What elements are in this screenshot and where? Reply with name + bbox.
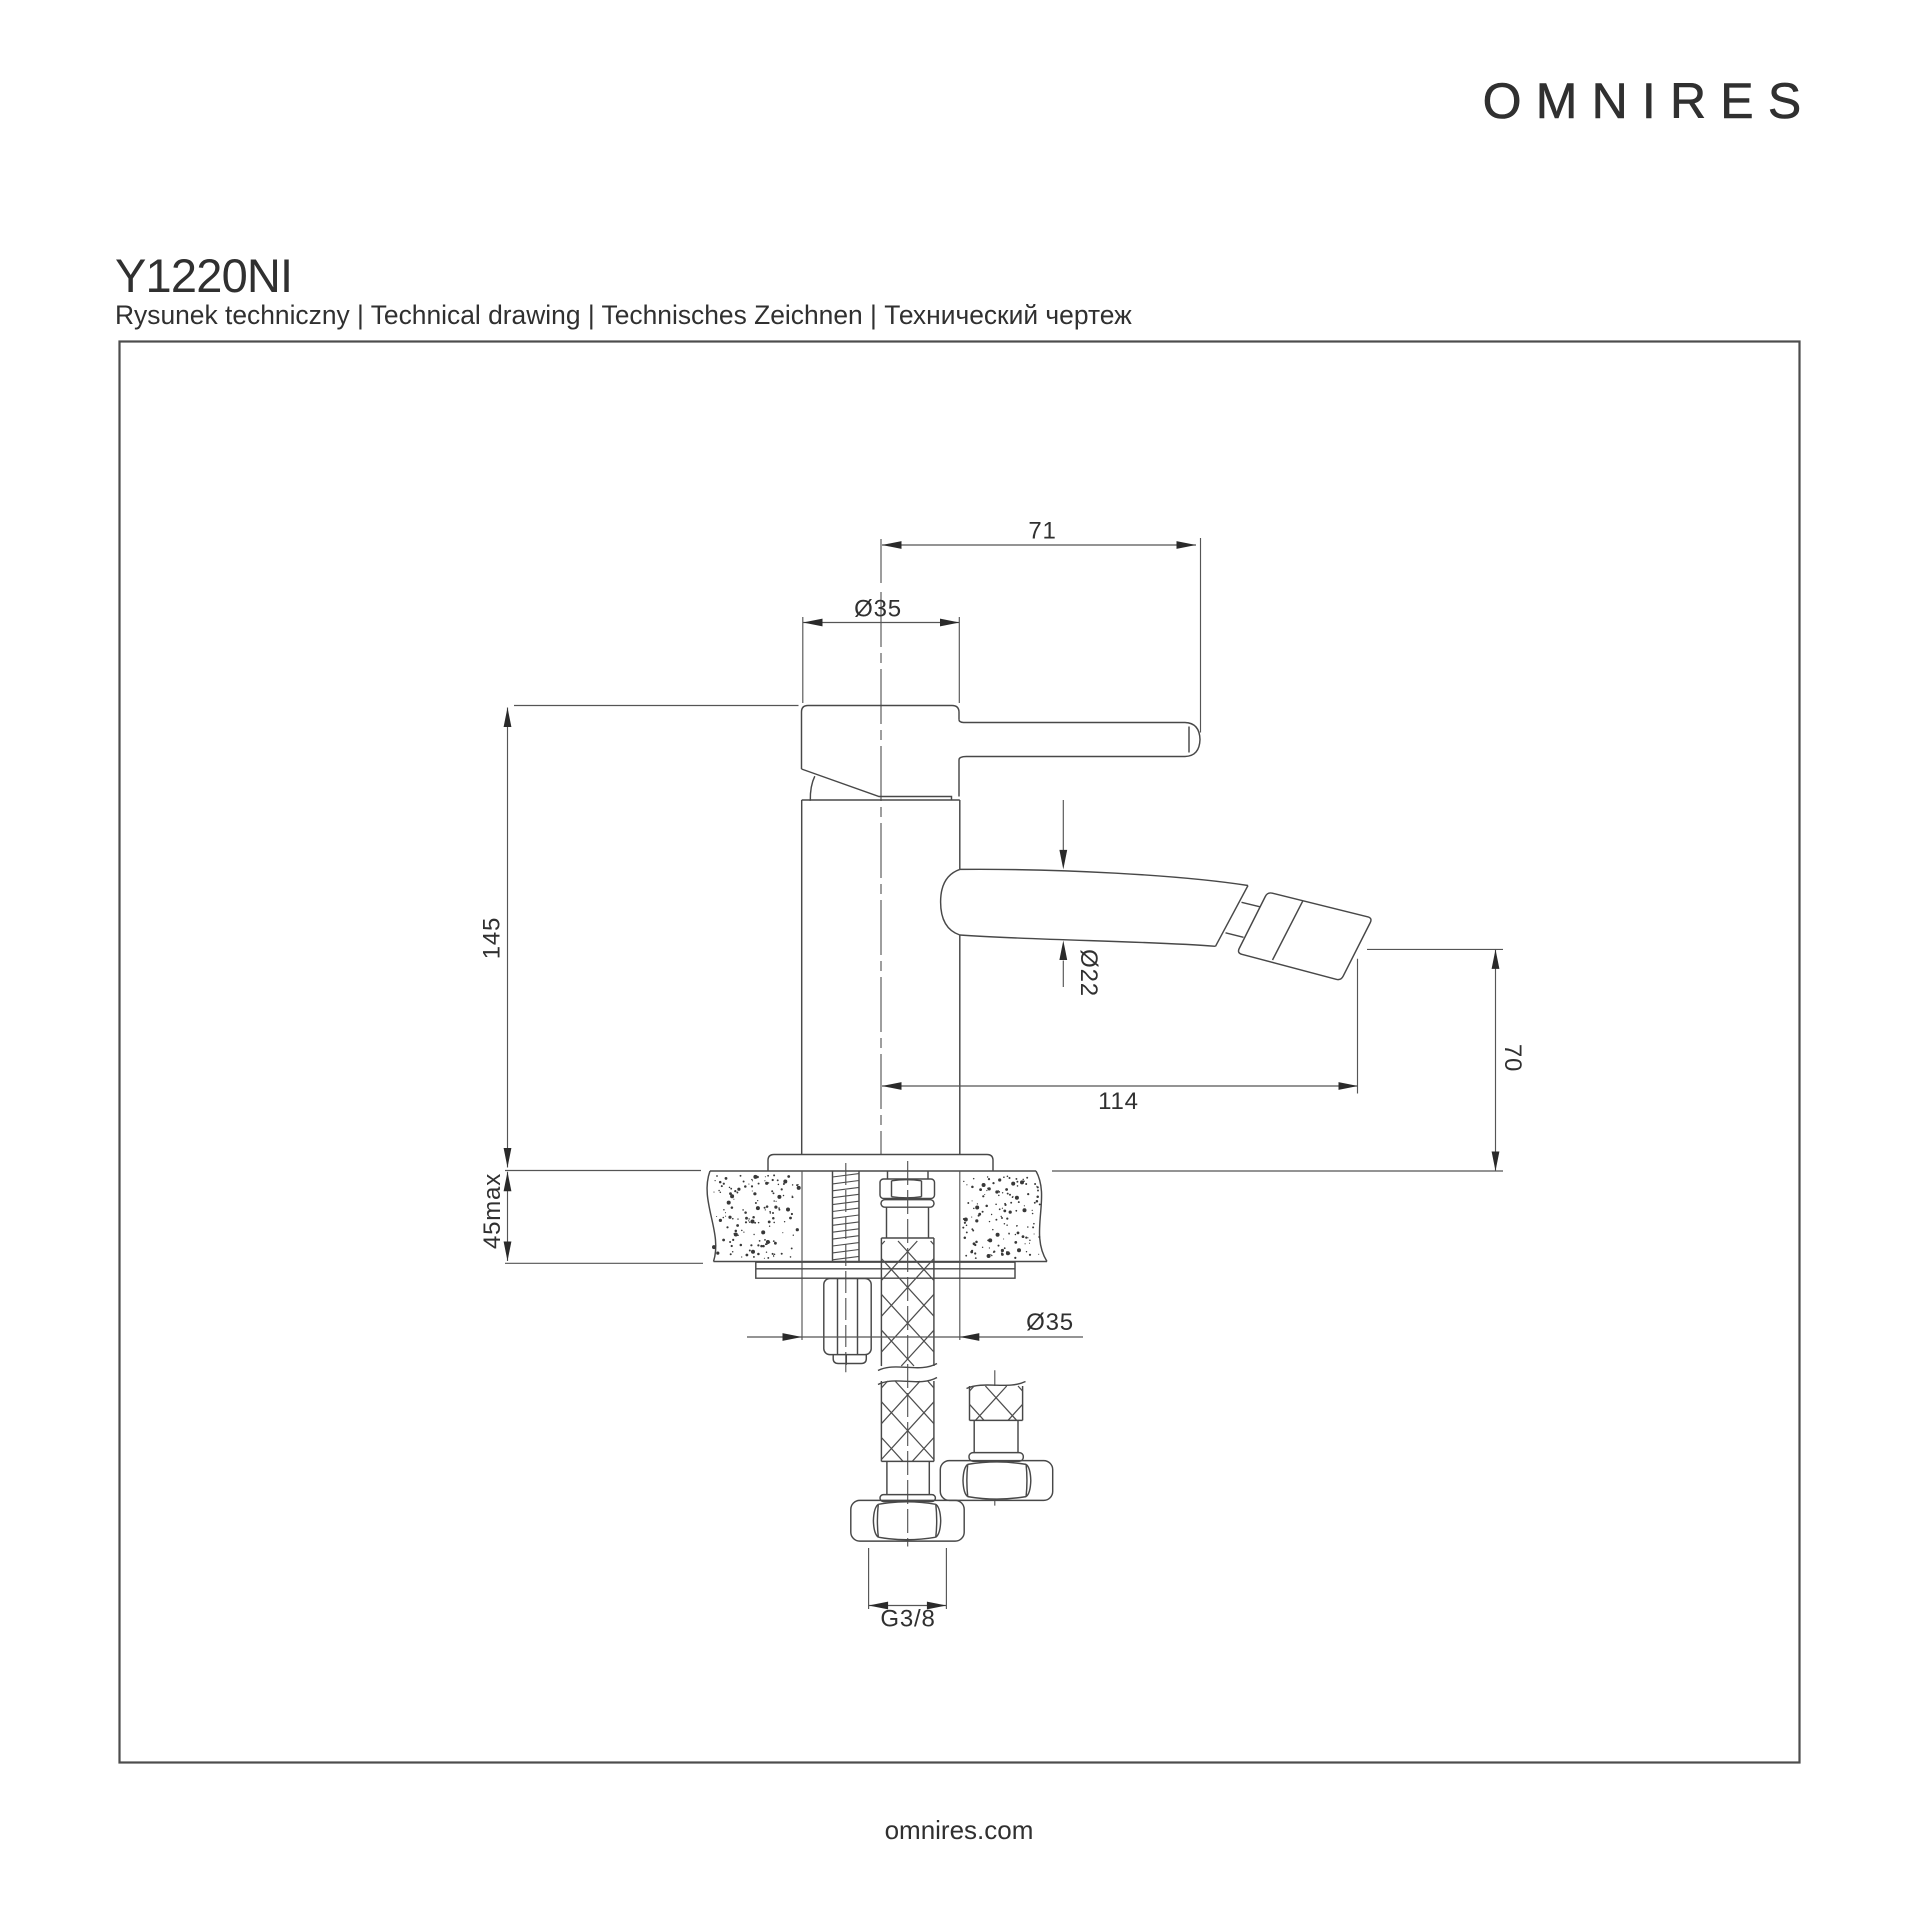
svg-text:Y1220NI: Y1220NI (115, 249, 292, 302)
svg-text:Ø35: Ø35 (854, 596, 902, 623)
svg-text:omnires.com: omnires.com (885, 1815, 1034, 1845)
svg-text:Ø22: Ø22 (1075, 949, 1102, 997)
svg-text:145: 145 (479, 917, 506, 959)
svg-text:G3/8: G3/8 (880, 1606, 935, 1633)
svg-text:70: 70 (1499, 1044, 1526, 1072)
svg-text:Rysunek techniczny | Technical: Rysunek techniczny | Technical drawing |… (115, 300, 1132, 330)
svg-text:45max: 45max (479, 1173, 506, 1249)
svg-text:Ø35: Ø35 (1026, 1309, 1074, 1336)
svg-text:71: 71 (1028, 518, 1056, 545)
svg-text:114: 114 (1098, 1088, 1139, 1115)
svg-text:OMNIRES: OMNIRES (1483, 73, 1816, 129)
